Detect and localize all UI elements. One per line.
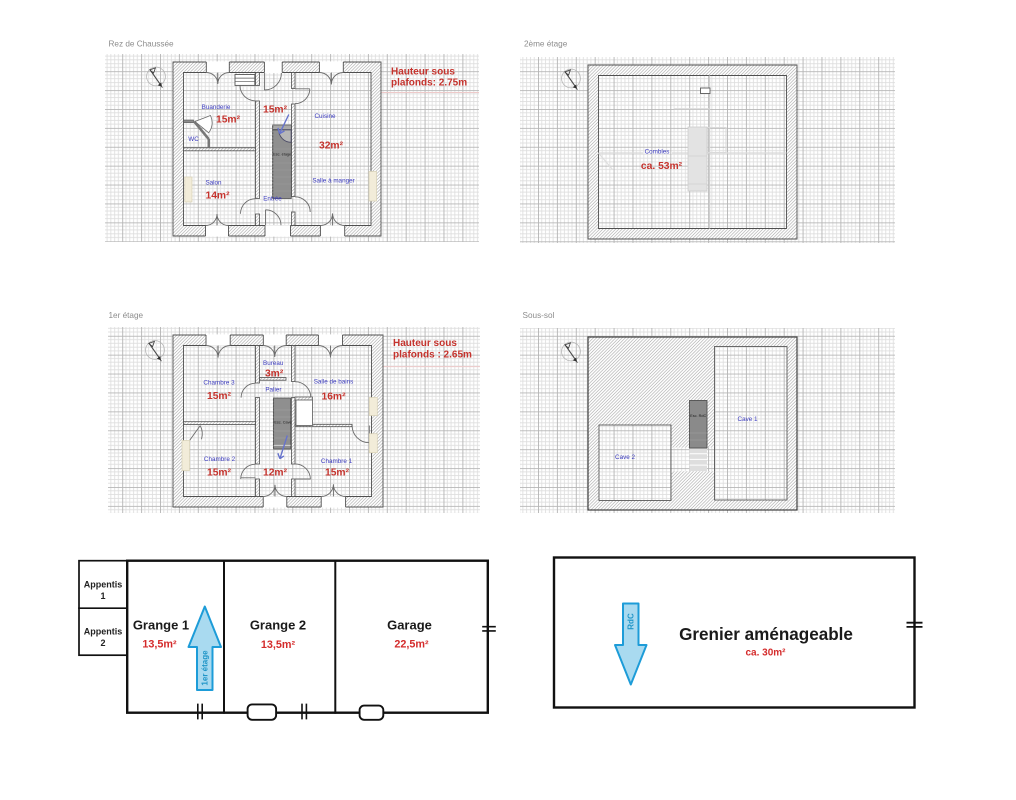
svg-text:15m²: 15m²: [216, 115, 241, 126]
svg-text:Salle de bains: Salle de bains: [314, 379, 354, 386]
svg-text:13,5m²: 13,5m²: [142, 638, 177, 650]
svg-text:WC: WC: [188, 136, 199, 143]
svg-text:3m²: 3m²: [265, 368, 284, 379]
svg-text:1: 1: [100, 591, 105, 601]
svg-text:Esc. Cave: Esc. Cave: [274, 420, 291, 424]
svg-text:22,5m²: 22,5m²: [394, 638, 429, 650]
svg-text:ca. 53m²: ca. 53m²: [641, 161, 683, 172]
svg-text:Grange 1: Grange 1: [133, 618, 189, 633]
svg-text:1er étage: 1er étage: [109, 311, 144, 320]
svg-text:RdC: RdC: [627, 613, 636, 630]
svg-text:2: 2: [100, 638, 105, 648]
svg-text:Hauteur sous: Hauteur sous: [391, 67, 455, 78]
svg-text:15m²: 15m²: [325, 467, 350, 478]
svg-text:12m²: 12m²: [263, 467, 288, 478]
svg-text:13,5m²: 13,5m²: [261, 639, 296, 651]
svg-text:Chambre 3: Chambre 3: [203, 380, 235, 387]
svg-text:Chambre 2: Chambre 2: [204, 456, 236, 463]
svg-text:Appentis: Appentis: [84, 580, 123, 590]
svg-text:32m²: 32m²: [319, 141, 344, 152]
svg-text:Palier: Palier: [265, 386, 281, 393]
svg-text:Cave 1: Cave 1: [738, 416, 758, 423]
svg-text:15m²: 15m²: [263, 104, 288, 115]
svg-text:Bureau: Bureau: [263, 360, 284, 367]
svg-text:15m²: 15m²: [207, 467, 232, 478]
svg-text:Combles: Combles: [645, 149, 670, 156]
svg-text:Garage: Garage: [387, 617, 432, 632]
svg-text:Sous-sol: Sous-sol: [523, 311, 555, 320]
svg-text:15m²: 15m²: [207, 391, 232, 402]
svg-text:plafonds : 2.65m: plafonds : 2.65m: [393, 349, 472, 360]
svg-text:plafonds: 2.75m: plafonds: 2.75m: [391, 78, 467, 89]
svg-text:14m²: 14m²: [205, 191, 230, 202]
svg-text:Esc. RdC: Esc. RdC: [690, 414, 706, 418]
svg-text:Hauteur sous: Hauteur sous: [393, 338, 457, 349]
svg-text:Esc. étage: Esc. étage: [273, 153, 291, 157]
svg-text:Rez de Chaussée: Rez de Chaussée: [109, 40, 175, 49]
svg-text:Buanderie: Buanderie: [202, 104, 231, 111]
svg-text:Cuisine: Cuisine: [315, 113, 336, 120]
svg-text:Entrée: Entrée: [263, 196, 282, 203]
svg-text:Chambre 1: Chambre 1: [321, 458, 353, 465]
svg-text:Grenier aménageable: Grenier aménageable: [679, 625, 853, 644]
svg-text:Salon: Salon: [205, 180, 222, 187]
svg-text:16m²: 16m²: [321, 391, 346, 402]
svg-text:Appentis: Appentis: [84, 627, 123, 637]
svg-text:Grange 2: Grange 2: [250, 618, 306, 633]
svg-text:Cave 2: Cave 2: [615, 454, 635, 461]
svg-text:1er étage: 1er étage: [201, 650, 210, 686]
svg-text:Salle à manger: Salle à manger: [312, 178, 354, 185]
svg-text:2ème étage: 2ème étage: [524, 40, 568, 49]
svg-text:ca. 30m²: ca. 30m²: [745, 648, 786, 659]
